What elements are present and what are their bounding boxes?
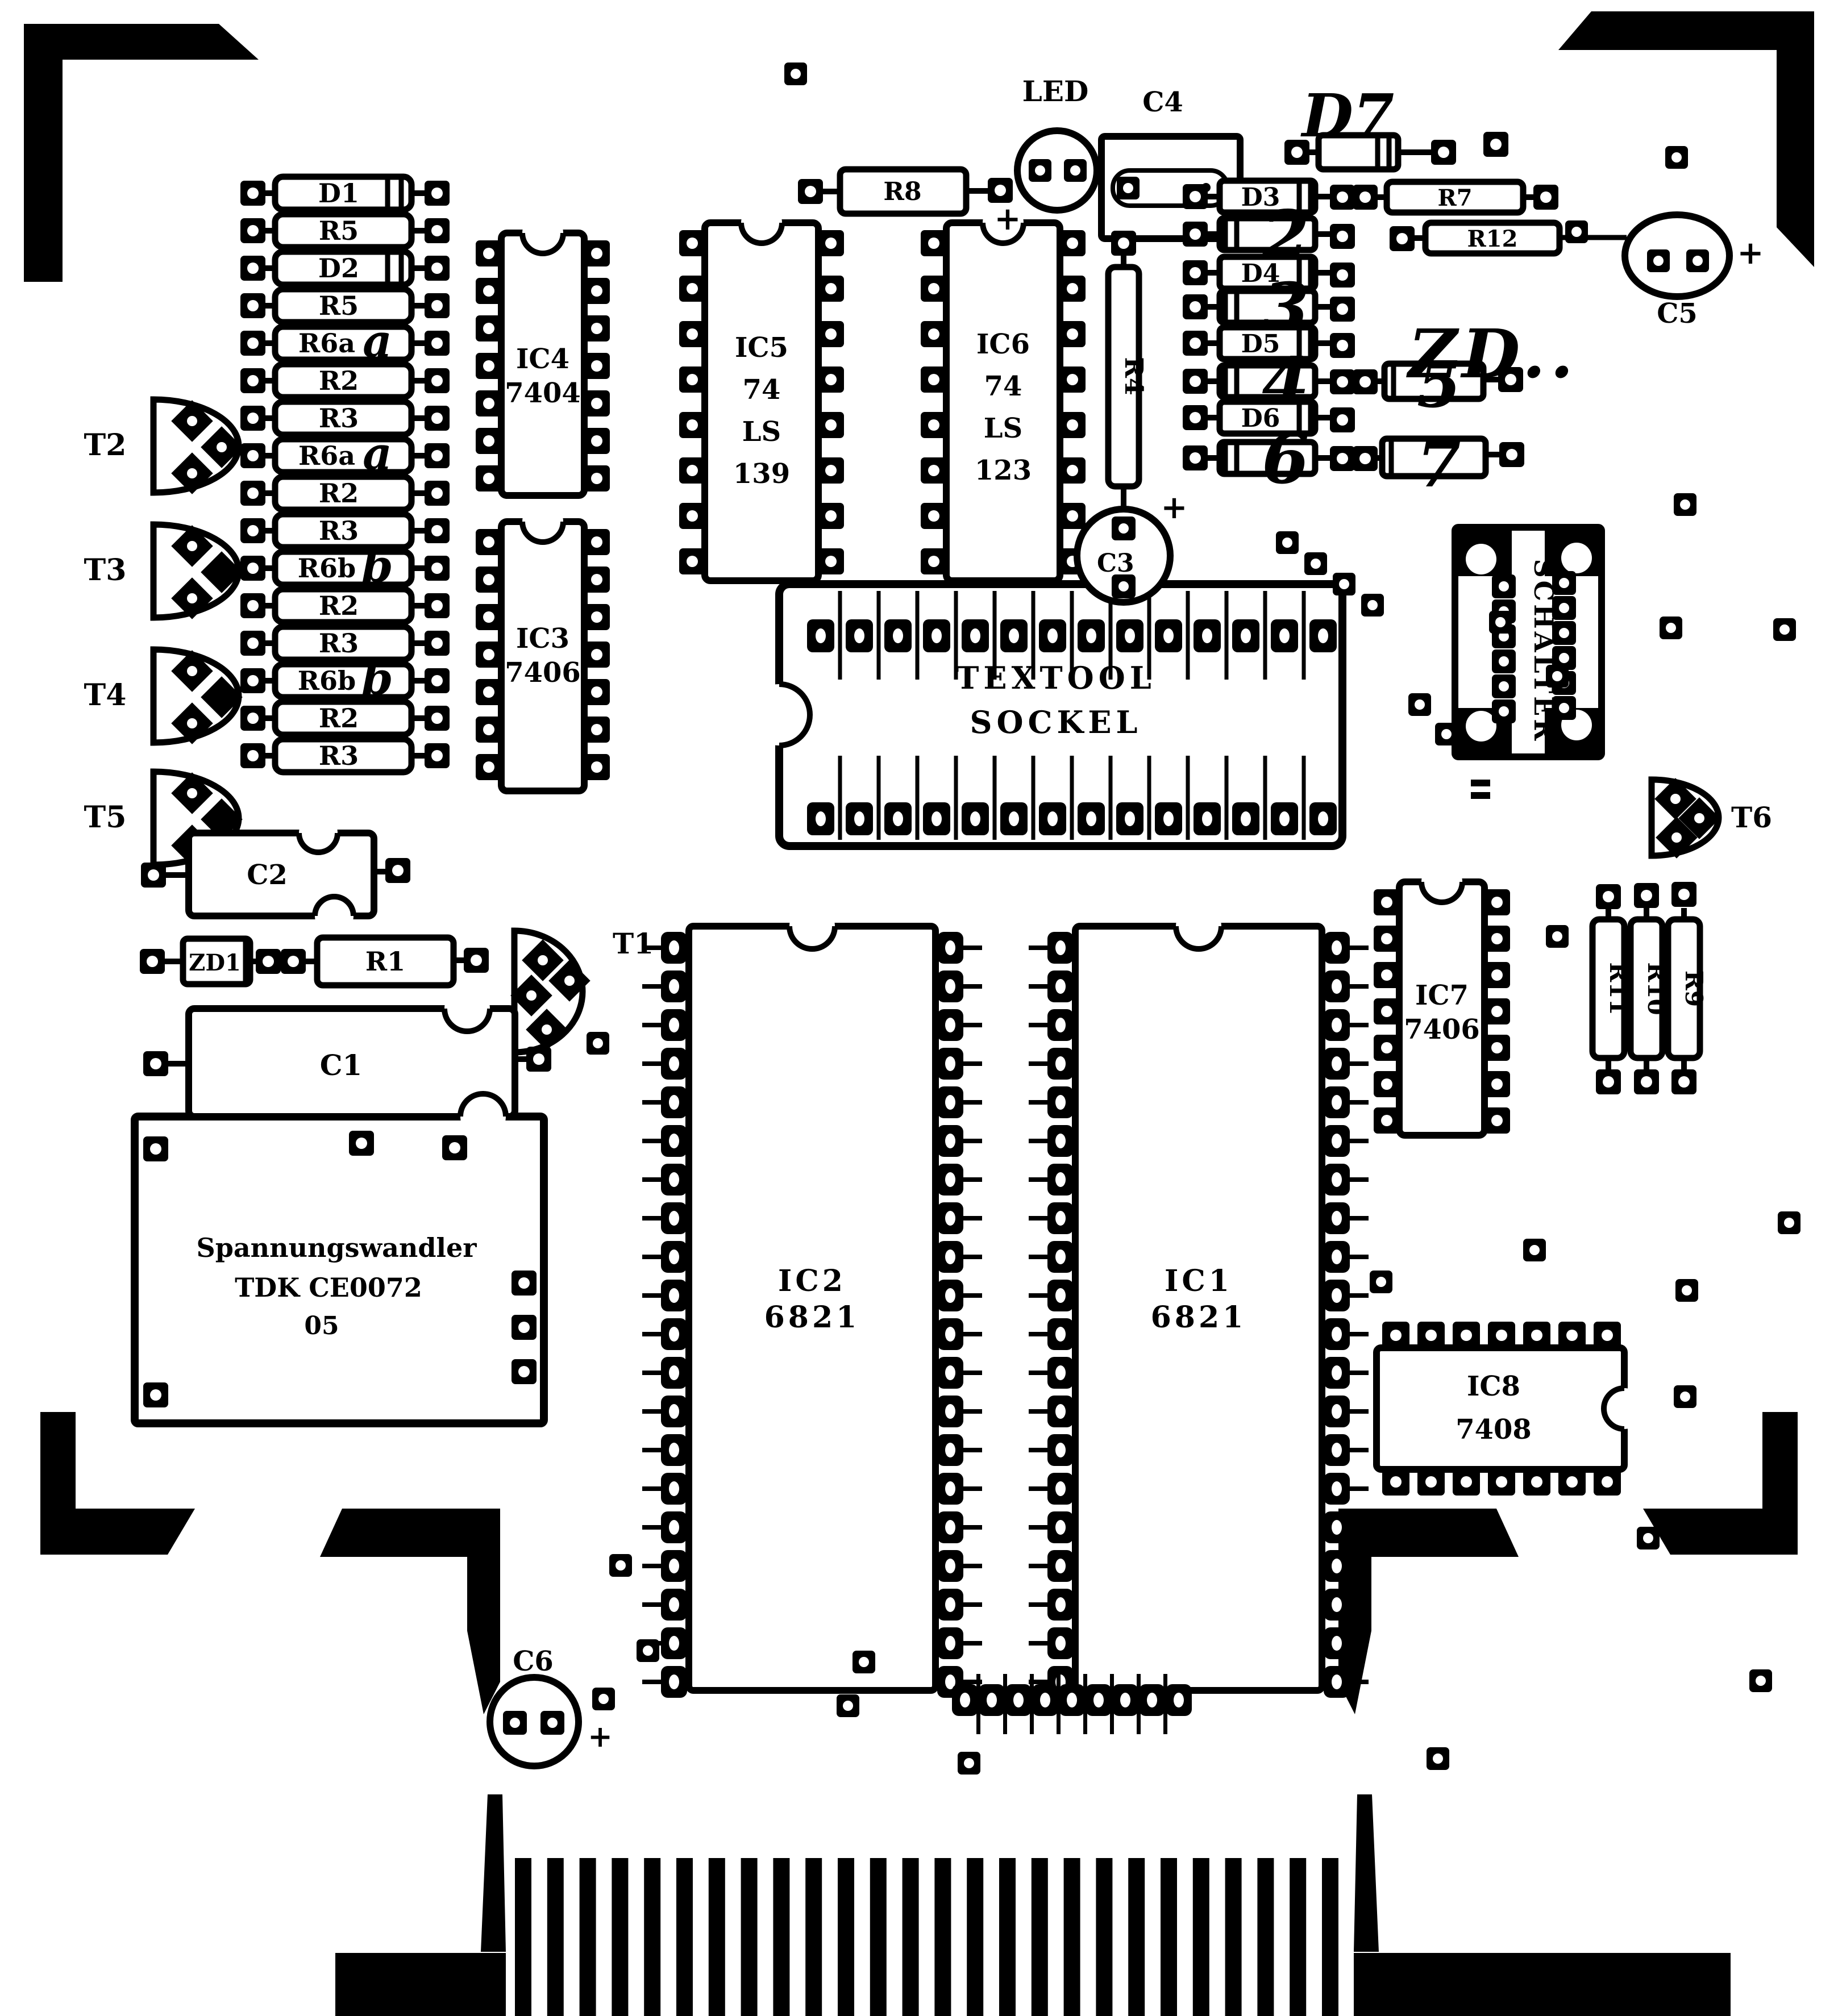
resistor-label: R9: [1680, 970, 1708, 1007]
ic-label: IC8: [1467, 1371, 1520, 1402]
led: LED+: [995, 74, 1097, 238]
handwritten-label: 6: [1262, 419, 1309, 499]
component-label: R3: [319, 515, 359, 546]
edge-connector-right-foot: [1354, 1953, 1731, 2016]
resistor-label: R4: [1119, 357, 1148, 395]
component-label: R6b: [298, 553, 356, 584]
component-row-R3-12: R3: [240, 627, 450, 660]
component-label: R2: [319, 590, 359, 621]
component-label: R2: [319, 478, 359, 509]
ic-label: 123: [975, 455, 1032, 486]
resistor-R8: R8: [798, 169, 1013, 214]
module-label: TDK CE0072: [235, 1272, 422, 1303]
polarity-plus: +: [995, 200, 1021, 238]
ic-label: 139: [733, 458, 790, 490]
handwritten-suffix: b: [361, 652, 393, 705]
transistor-label: T2: [84, 428, 127, 463]
handwritten-annotation: ZD..: [1406, 314, 1578, 393]
ic-label: 7404: [505, 377, 581, 409]
ic-label: LS: [742, 416, 781, 448]
capacitor-label: C2: [247, 859, 288, 891]
edge-connector-finger: [967, 1858, 983, 2016]
spannungswandler-module: SpannungswandlerTDK CE007205: [135, 1117, 544, 1423]
transistor-T4: T4: [84, 649, 243, 744]
zd1-r1-row: ZD1R1: [140, 938, 489, 985]
capacitor-label: C5: [1657, 298, 1698, 330]
component-label: R3: [319, 740, 359, 771]
component-label: R6a: [298, 328, 355, 359]
edge-connector-left-spike: [481, 1794, 506, 1952]
transistor-label: T1: [613, 927, 654, 960]
component-row-R2-11: R2: [240, 589, 450, 622]
handwritten-suffix: b: [361, 539, 393, 593]
component-row-R2-5: R2: [240, 364, 450, 397]
component-row-R5-1: R5: [240, 214, 450, 247]
edge-connector-finger: [1225, 1858, 1242, 2016]
component-row-D1-0: D1: [240, 177, 450, 210]
component-label: R3: [319, 628, 359, 659]
component-label: R2: [319, 365, 359, 396]
resistor-R7: R7: [1378, 182, 1558, 213]
component-label: D2: [318, 253, 359, 284]
edge-connector-left-foot: [335, 1953, 506, 2016]
edge-connector-finger: [676, 1858, 693, 2016]
edge-connector-finger: [1257, 1858, 1274, 2016]
corner-mark-bottom-right-outer: [1643, 1412, 1798, 1555]
ic-label: IC2: [778, 1264, 846, 1298]
transistor-label: T6: [1731, 801, 1772, 834]
edge-connector-finger: [805, 1858, 822, 2016]
capacitor-label: C6: [513, 1646, 554, 1677]
edge-connector-finger: [870, 1858, 887, 2016]
capacitor-label: C1: [320, 1048, 363, 1082]
edge-connector-finger: [773, 1858, 789, 2016]
transistor-T6: T6: [1652, 778, 1772, 859]
corner-mark-bottom-left-inner: [320, 1509, 500, 1714]
edge-connector-right-spike: [1354, 1794, 1379, 1952]
ic-label: 7406: [505, 657, 581, 689]
component-label: D1: [318, 178, 359, 209]
component-row-R2-8: R2: [240, 477, 450, 510]
resistor-R11: R11: [1592, 884, 1632, 1094]
component-label: R3: [319, 403, 359, 434]
capacitor-C4: C4: [1101, 86, 1240, 239]
ic-IC3: IC37406: [476, 501, 610, 791]
ic-IC2: IC26821: [642, 903, 982, 1698]
ic-label: LS: [984, 413, 1022, 444]
handwritten-suffix: a: [363, 427, 392, 480]
component-row-D2-2: D2: [240, 252, 450, 285]
component-row-R3-9: R3: [240, 514, 450, 547]
led-label: LED: [1022, 74, 1089, 108]
switch-label: SCHALTER: [1528, 559, 1559, 743]
capacitor-label: C3: [1097, 549, 1134, 578]
ic-IC5: IC574LS139: [679, 202, 844, 581]
component-label: R5: [319, 290, 359, 321]
edge-connector-finger: [999, 1858, 1016, 2016]
edge-connector-finger: [1032, 1858, 1048, 2016]
ic-label: 7408: [1456, 1414, 1532, 1446]
component-row-R3-15: R3: [240, 739, 450, 772]
edge-connector-finger: [1096, 1858, 1112, 2016]
tick-mark: [1471, 792, 1490, 799]
ic-label: IC5: [735, 332, 788, 364]
ic-label: IC6: [976, 328, 1030, 360]
component-row-R5-3: R5: [240, 289, 450, 322]
polarity-plus: +: [1737, 234, 1764, 272]
edge-connector-finger: [838, 1858, 854, 2016]
corner-mark-top-left: [24, 24, 259, 282]
schalter-switch: SCHALTER: [1455, 527, 1602, 757]
ic-label: 6821: [1151, 1300, 1247, 1335]
diode-D7: D7: [1284, 81, 1508, 169]
resistor-label: R1: [365, 946, 405, 977]
textool-socket: TEXTOOLSOCKEL: [748, 584, 1342, 846]
transistor-label: T4: [84, 678, 127, 713]
edge-connector-finger: [934, 1858, 951, 2016]
component-row-R3-6: R3: [240, 402, 450, 435]
socket-label: SOCKEL: [970, 704, 1142, 740]
edge-connector-finger: [580, 1858, 596, 2016]
component-row-R2-14: R2: [240, 702, 450, 735]
edge-connector-finger: [1193, 1858, 1209, 2016]
ic-IC7: IC77406: [1374, 861, 1510, 1135]
edge-connector-finger: [515, 1858, 531, 2016]
resistor-label: R12: [1467, 226, 1518, 252]
transistor-label: T5: [84, 800, 127, 835]
pcb-component-layout-diagram: D1R5D2R5R6aaR2R3R6aaR2R3R6bbR2R3R6bbR2R3…: [0, 0, 1838, 2016]
mounting-hole: [1466, 711, 1496, 742]
transistor-label: T3: [84, 553, 127, 588]
edge-connector-finger: [644, 1858, 660, 2016]
transistor-T3: T3: [84, 524, 243, 619]
ic-label: 74: [743, 374, 781, 406]
ic-IC1: IC16821: [1029, 903, 1369, 1698]
diode-label: ZD1: [189, 949, 241, 976]
mounting-hole: [1561, 543, 1592, 573]
left-component-column: D1R5D2R5R6aaR2R3R6aaR2R3R6bbR2R3R6bbR2R3: [240, 177, 450, 772]
edge-connector-finger: [1161, 1858, 1177, 2016]
capacitor-C1: C1: [143, 986, 551, 1139]
edge-connector: [335, 1794, 1731, 2016]
corner-mark-bottom-left-outer: [40, 1412, 195, 1555]
component-label: R6b: [298, 665, 356, 696]
resistor-R4: R4: [1108, 231, 1148, 514]
edge-connector-finger: [1064, 1858, 1080, 2016]
socket-label: TEXTOOL: [956, 660, 1155, 696]
pcb-layout-page: D1R5D2R5R6aaR2R3R6aaR2R3R6bbR2R3R6bbR2R3…: [0, 0, 1838, 2016]
handwritten-label: 7: [1417, 427, 1461, 502]
polarity-plus: +: [1161, 489, 1188, 526]
ic-label: IC7: [1415, 980, 1469, 1011]
zener-7: 7: [1378, 427, 1524, 502]
ic-label: 74: [984, 370, 1022, 402]
edge-connector-finger: [903, 1858, 919, 2016]
edge-connector-finger: [709, 1858, 725, 2016]
module-label: Spannungswandler: [196, 1232, 477, 1263]
edge-connector-finger: [741, 1858, 758, 2016]
resistor-label: R7: [1437, 185, 1472, 211]
ic-label: 6821: [764, 1300, 860, 1335]
component-label: R5: [319, 215, 359, 246]
resistor-label: R8: [883, 177, 921, 206]
ic-label: IC3: [516, 623, 569, 655]
ic-label: 7406: [1404, 1014, 1480, 1046]
polarity-plus: +: [588, 1719, 613, 1754]
transistor-T1: T1: [510, 927, 654, 1055]
transistor-T2: T2: [84, 399, 243, 494]
resistor-R9: R9: [1668, 882, 1708, 1094]
ic-IC8: IC87408: [1377, 1322, 1645, 1496]
mounting-hole: [1466, 544, 1496, 574]
handwritten-suffix: a: [363, 314, 392, 368]
tick-marks: [1471, 780, 1490, 799]
ic-label: IC4: [516, 343, 569, 375]
module-label: 05: [304, 1311, 339, 1340]
edge-connector-finger: [612, 1858, 628, 2016]
ic-IC6: IC674LS123: [921, 202, 1086, 581]
capacitor-label: C4: [1142, 86, 1183, 118]
component-label: R2: [319, 703, 359, 734]
capacitor-C5: C5+: [1625, 215, 1764, 330]
component-label: R6a: [298, 440, 355, 471]
ic-IC4: IC47404: [476, 213, 610, 495]
resistor-R10: R10: [1631, 883, 1670, 1094]
ic-label: IC1: [1165, 1264, 1233, 1298]
tick-mark: [1471, 780, 1490, 786]
edge-connector-finger: [1290, 1858, 1306, 2016]
edge-connector-finger: [1128, 1858, 1145, 2016]
edge-connector-finger: [547, 1858, 564, 2016]
edge-connector-finger: [1322, 1858, 1338, 2016]
zd-annotation: ZD..: [1406, 314, 1578, 393]
resistor-R12: R12: [1390, 223, 1627, 253]
